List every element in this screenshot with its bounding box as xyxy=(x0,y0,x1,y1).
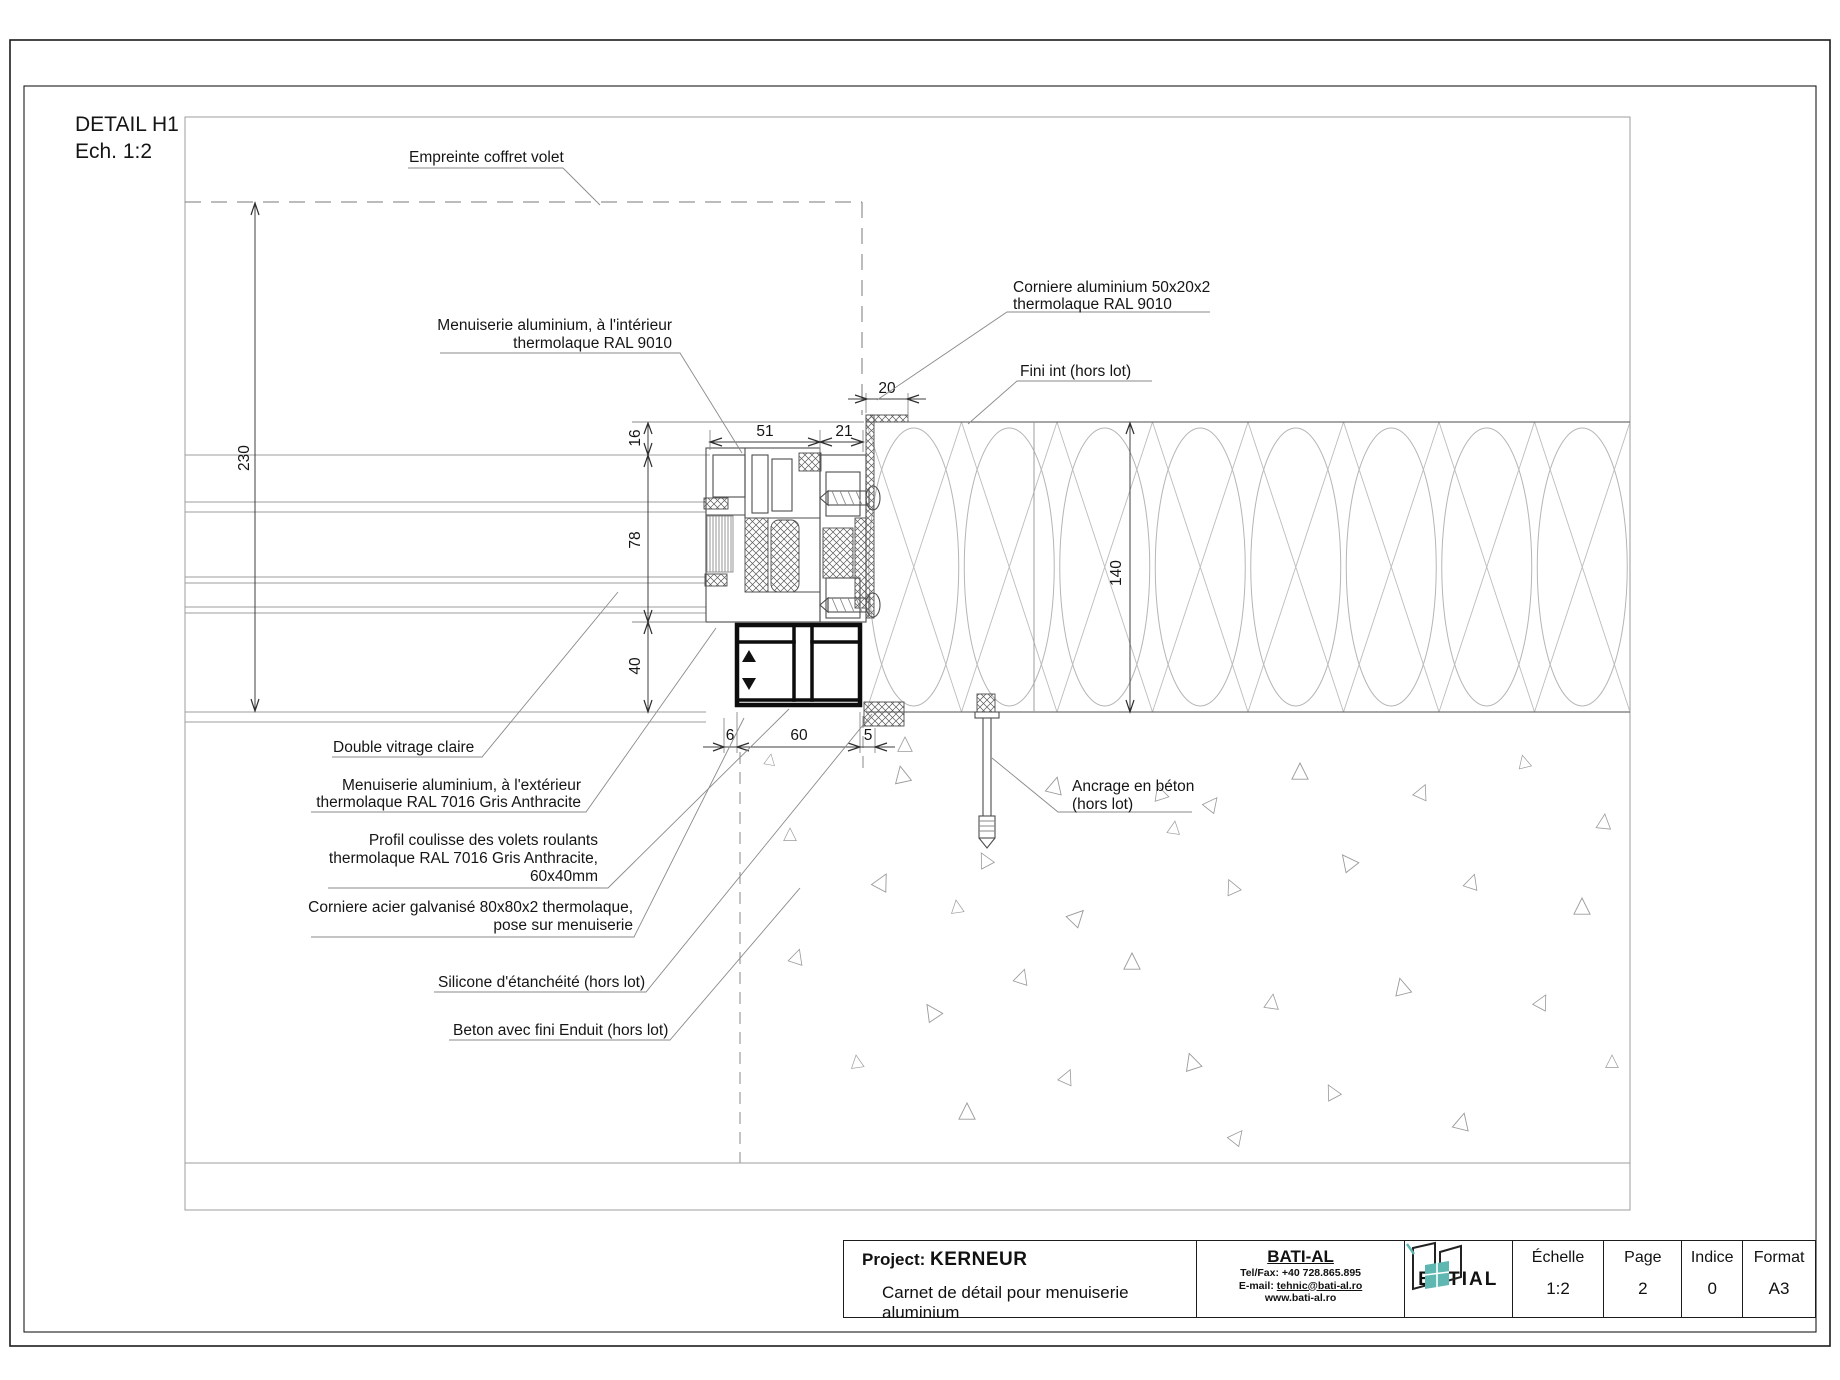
dim-60: 60 xyxy=(790,727,808,744)
dim-6: 6 xyxy=(726,727,735,744)
scale-value: 1:2 xyxy=(1546,1279,1570,1299)
project-line: Project: KERNEUR xyxy=(862,1249,1027,1271)
concrete-triangle-symbol xyxy=(1182,1051,1202,1071)
email-label: E-mail: xyxy=(1239,1280,1274,1292)
arrow-down-symbol xyxy=(742,678,756,690)
title-block-contact-cell: BATI-AL Tel/Fax: +40 728.865.895 E-mail:… xyxy=(1197,1241,1405,1317)
label-profil-1: Profil coulisse des volets roulants xyxy=(369,832,598,849)
glazing-lines xyxy=(185,455,710,722)
technical-drawing: 230 16 78 40 51 21 20 140 xyxy=(0,0,1840,1380)
page-label: Page xyxy=(1624,1249,1661,1267)
concrete-triangle-symbol xyxy=(788,947,806,965)
concrete-triangle-symbol xyxy=(1222,877,1241,896)
dim-140: 140 xyxy=(1108,560,1125,586)
scale-label: Échelle xyxy=(1532,1249,1584,1267)
company-email-line: E-mail: tehnic@bati-al.ro xyxy=(1197,1280,1404,1293)
page-value: 2 xyxy=(1638,1279,1647,1299)
label-corniere-acier-2: pose sur menuiserie xyxy=(493,917,633,934)
title-block-page-cell: Page 2 xyxy=(1604,1241,1682,1317)
format-label: Format xyxy=(1754,1249,1805,1267)
profil-coulisse xyxy=(737,625,860,705)
dim-51: 51 xyxy=(756,423,773,440)
dim-5: 5 xyxy=(864,727,873,744)
wall-insulation xyxy=(866,422,1630,712)
concrete-triangle-symbol xyxy=(764,753,777,766)
concrete-triangle-symbol xyxy=(1452,1111,1472,1131)
label-silicone: Silicone d'étanchéité (hors lot) xyxy=(438,974,645,991)
concrete-triangle-symbol xyxy=(1574,898,1590,914)
label-fini-int: Fini int (hors lot) xyxy=(1020,363,1131,380)
format-value: A3 xyxy=(1769,1279,1790,1299)
concrete-triangle-symbol xyxy=(1264,993,1280,1009)
title-block-scale-cell: Échelle 1:2 xyxy=(1513,1241,1605,1317)
concrete-triangle-symbol xyxy=(1463,872,1481,890)
label-ancrage-1: Ancrage en béton xyxy=(1072,778,1194,795)
label-profil-3: 60x40mm xyxy=(530,868,598,885)
concrete-triangle-symbol xyxy=(975,850,994,869)
concrete-triangle-symbol xyxy=(871,870,893,892)
project-label: Project: xyxy=(862,1250,925,1269)
label-ancrage-2: (hors lot) xyxy=(1072,796,1133,813)
dim-21: 21 xyxy=(835,423,852,440)
label-profil-2: thermolaque RAL 7016 Gris Anthracite, xyxy=(329,850,598,867)
label-corniere-alu-1: Corniere aluminium 50x20x2 xyxy=(1013,279,1210,296)
concrete-triangle-symbol xyxy=(1596,813,1612,829)
concrete-triangle-symbol xyxy=(850,1054,864,1068)
concrete-triangle-symbol xyxy=(1392,976,1412,996)
label-empreinte: Empreinte coffret volet xyxy=(409,149,564,166)
silicone-joint xyxy=(864,702,904,726)
dim-230: 230 xyxy=(236,445,253,471)
aluminium-frame-section xyxy=(704,448,880,622)
concrete-triangle-symbol xyxy=(1124,953,1140,969)
indice-value: 0 xyxy=(1707,1279,1716,1299)
arrow-up-symbol xyxy=(742,650,756,662)
label-menuiserie-ext-1: Menuiserie aluminium, à l'extérieur xyxy=(342,777,581,794)
company-website: www.bati-al.ro xyxy=(1197,1292,1404,1305)
label-double-vitrage: Double vitrage claire xyxy=(333,739,474,756)
project-subtitle: Carnet de détail pour menuiserie alumini… xyxy=(882,1283,1196,1323)
concrete-triangle-symbol xyxy=(1058,1067,1077,1086)
dim-78: 78 xyxy=(627,531,644,548)
concrete-triangle-symbol xyxy=(784,828,797,841)
label-corniere-acier-1: Corniere acier galvanisé 80x80x2 thermol… xyxy=(308,899,633,916)
email-address: tehnic@bati-al.ro xyxy=(1277,1280,1363,1292)
concrete-triangle-symbol xyxy=(1336,850,1359,873)
concrete-triangle-symbol xyxy=(892,765,911,784)
concrete-triangle-symbol xyxy=(1202,793,1222,813)
concrete-anchor xyxy=(975,694,999,848)
concrete-triangle-symbol xyxy=(1227,1126,1247,1146)
logo-slash-icon xyxy=(1405,1241,1415,1257)
label-menuiserie-int-2: thermolaque RAL 9010 xyxy=(513,335,672,352)
detail-scale: Ech. 1:2 xyxy=(75,140,152,163)
dim-40: 40 xyxy=(627,657,644,675)
label-menuiserie-ext-2: thermolaque RAL 7016 Gris Anthracite xyxy=(316,794,581,811)
concrete-triangle-symbol xyxy=(1322,1082,1341,1101)
title-block-format-cell: Format A3 xyxy=(1743,1241,1815,1317)
concrete-triangle-symbol xyxy=(1292,763,1308,779)
label-menuiserie-int-1: Menuiserie aluminium, à l'intérieur xyxy=(437,317,672,334)
concrete-triangle-symbol xyxy=(1167,820,1181,834)
glazing-spacer-coil xyxy=(707,516,733,572)
concrete-triangle-symbol xyxy=(920,1000,942,1022)
title-block-logo-cell: BATI AL xyxy=(1405,1241,1513,1317)
concrete-triangle-symbol xyxy=(1606,1055,1619,1068)
logo-text-right: AL xyxy=(1469,1269,1498,1291)
detail-title: DETAIL H1 xyxy=(75,113,179,136)
concrete-triangle-symbol xyxy=(1516,754,1531,769)
concrete-triangle-symbol xyxy=(1533,992,1552,1011)
company-name: BATI-AL xyxy=(1197,1247,1404,1267)
title-block-indice-cell: Indice 0 xyxy=(1682,1241,1743,1317)
shutter-box-imprint-outline xyxy=(185,202,862,415)
label-beton: Beton avec fini Enduit (hors lot) xyxy=(453,1022,668,1039)
indice-label: Indice xyxy=(1691,1249,1734,1267)
concrete-triangle-symbol xyxy=(959,1103,975,1119)
drawing-sheet: 230 16 78 40 51 21 20 140 xyxy=(0,0,1840,1380)
title-block-project-cell: Project: KERNEUR Carnet de détail pour m… xyxy=(844,1241,1197,1317)
label-corniere-alu-2: thermolaque RAL 9010 xyxy=(1013,296,1172,313)
concrete-symbols xyxy=(764,737,1618,1146)
company-telfax: Tel/Fax: +40 728.865.895 xyxy=(1197,1267,1404,1280)
concrete-triangle-symbol xyxy=(950,899,964,913)
concrete-triangle-symbol xyxy=(1413,782,1432,801)
concrete-triangle-symbol xyxy=(1066,905,1089,928)
dim-16: 16 xyxy=(627,429,644,446)
title-block: Project: KERNEUR Carnet de détail pour m… xyxy=(843,1240,1816,1318)
concrete-triangle-symbol xyxy=(1045,775,1065,795)
project-name: KERNEUR xyxy=(930,1249,1027,1270)
concrete-triangle-symbol xyxy=(898,737,912,751)
concrete-triangle-symbol xyxy=(1013,967,1031,985)
